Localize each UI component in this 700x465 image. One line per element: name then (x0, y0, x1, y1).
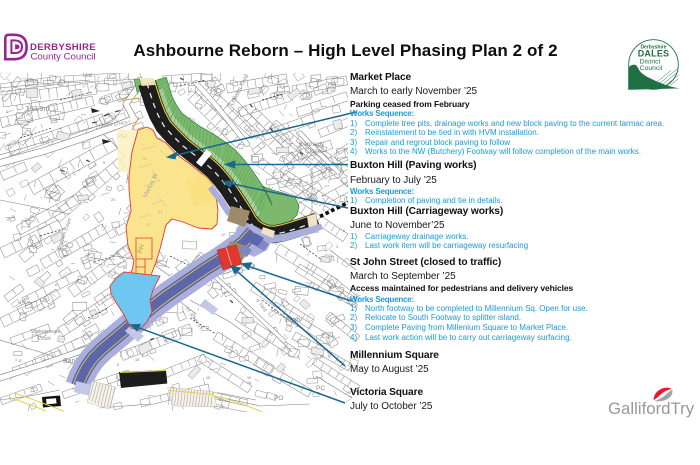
svg-text:20: 20 (115, 252, 119, 256)
svg-text:57: 57 (143, 157, 147, 161)
svg-text:133.9m: 133.9m (26, 106, 50, 113)
svg-text:6: 6 (55, 283, 57, 287)
svg-text:6: 6 (101, 96, 103, 100)
svg-text:Hall: Hall (83, 73, 92, 79)
svg-text:15: 15 (206, 376, 210, 380)
svg-text:7: 7 (197, 308, 199, 312)
svg-text:Yard: Yard (18, 295, 31, 307)
svg-text:15: 15 (247, 381, 251, 385)
svg-text:PC: PC (316, 385, 325, 392)
svg-text:Court: Court (38, 336, 51, 342)
svg-text:Kennedy: Kennedy (299, 141, 325, 148)
svg-text:20: 20 (301, 89, 305, 93)
svg-text:3: 3 (6, 110, 8, 114)
svg-text:1: 1 (15, 358, 17, 362)
svg-text:Close: Close (305, 148, 322, 155)
svg-text:18: 18 (135, 358, 139, 362)
svg-text:15: 15 (15, 140, 19, 144)
svg-text:15: 15 (247, 376, 251, 380)
svg-text:31: 31 (158, 210, 162, 214)
svg-text:PO: PO (274, 395, 283, 402)
svg-text:7: 7 (164, 255, 166, 259)
svg-text:20: 20 (111, 198, 115, 202)
svg-text:County Council: County Council (31, 52, 96, 63)
svg-text:20: 20 (123, 266, 127, 270)
svg-text:12: 12 (18, 359, 22, 363)
svg-text:8: 8 (117, 363, 119, 367)
svg-text:12: 12 (221, 233, 225, 237)
svg-text:Shakespeare: Shakespeare (30, 329, 61, 335)
svg-text:3: 3 (336, 245, 338, 249)
svg-text:9: 9 (103, 161, 105, 165)
svg-text:DALES: DALES (638, 49, 670, 59)
svg-text:Council: Council (640, 65, 663, 72)
svg-text:37: 37 (146, 223, 150, 227)
svg-text:8: 8 (219, 398, 221, 402)
svg-text:2: 2 (50, 195, 52, 199)
svg-text:GallifordTry: GallifordTry (608, 399, 695, 418)
svg-text:6: 6 (343, 229, 345, 233)
svg-text:d Yard: d Yard (254, 298, 267, 314)
svg-text:ST JOHN ST: ST JOHN ST (184, 306, 204, 331)
svg-text:2: 2 (319, 203, 321, 207)
